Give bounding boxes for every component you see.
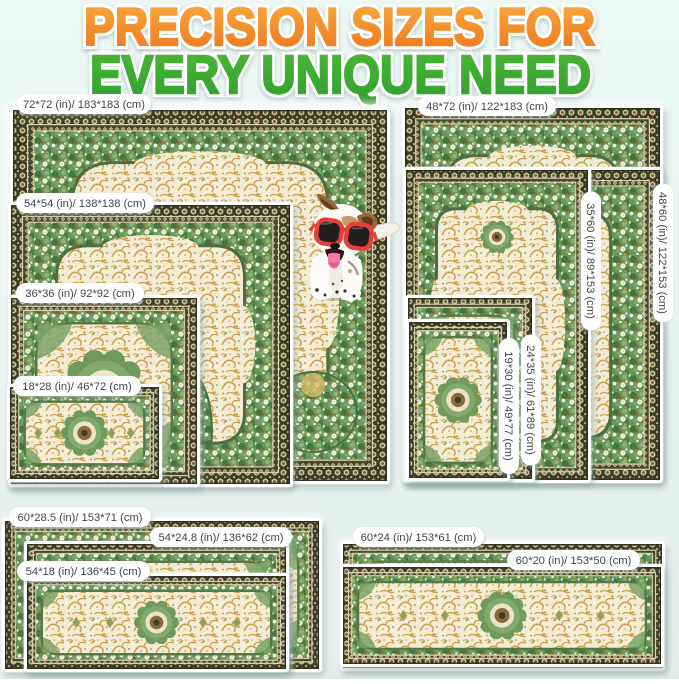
svg-text:54*54 (in)/ 138*138 (cm): 54*54 (in)/ 138*138 (cm) [24,198,146,210]
svg-text:54*18 (in)/ 136*45 (cm): 54*18 (in)/ 136*45 (cm) [26,566,142,578]
svg-text:48*72 (in)/ 122*183 (cm): 48*72 (in)/ 122*183 (cm) [426,101,548,113]
svg-text:48*60 (in)/ 122*153 (cm): 48*60 (in)/ 122*153 (cm) [656,192,668,314]
svg-text:72*72 (in)/ 183*183 (cm): 72*72 (in)/ 183*183 (cm) [23,99,145,111]
svg-text:19*30 (in)/ 49*77 (cm): 19*30 (in)/ 49*77 (cm) [502,351,514,461]
svg-text:24*35 (in)/ 61*89 (cm): 24*35 (in)/ 61*89 (cm) [524,345,536,455]
svg-text:60*28.5 (in)/ 153*71 (cm): 60*28.5 (in)/ 153*71 (cm) [18,512,143,524]
svg-text:60*24 (in)/ 153*61 (cm): 60*24 (in)/ 153*61 (cm) [361,532,477,544]
svg-text:36*36 (in)/ 92*92 (cm): 36*36 (in)/ 92*92 (cm) [25,288,135,300]
svg-text:54*24.8 (in)/ 136*62 (cm): 54*24.8 (in)/ 136*62 (cm) [159,532,284,544]
svg-text:35*60 (in)/ 89*153 (cm): 35*60 (in)/ 89*153 (cm) [584,203,596,319]
svg-text:60*20 (in)/ 153*50 (cm): 60*20 (in)/ 153*50 (cm) [516,555,632,567]
svg-text:18*28 (in)/ 46*72 (cm): 18*28 (in)/ 46*72 (cm) [22,381,132,393]
